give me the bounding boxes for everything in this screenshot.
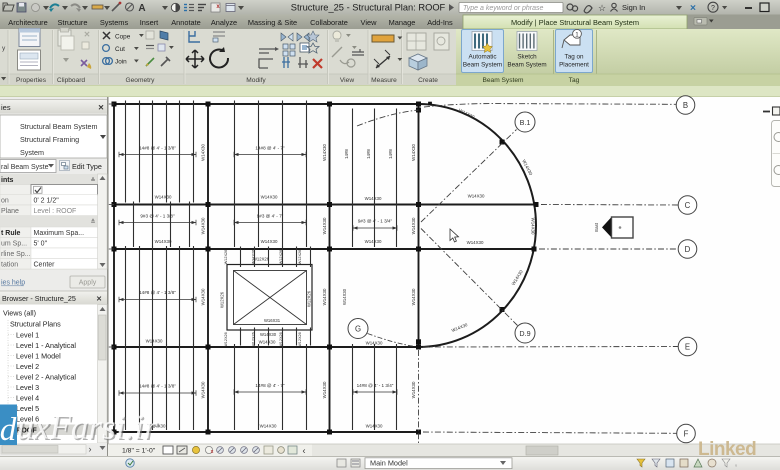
svg-text:14#8 @ 4' - 1 3/8": 14#8 @ 4' - 1 3/8" — [139, 146, 176, 151]
svg-text:on: on — [1, 197, 9, 204]
svg-text:ints: ints — [1, 177, 14, 184]
svg-text:W12X26: W12X26 — [252, 250, 256, 265]
svg-text:Architecture: Architecture — [8, 18, 47, 27]
svg-text:W14X30: W14X30 — [261, 239, 278, 244]
svg-text:Level : ROOF: Level : ROOF — [34, 208, 77, 215]
svg-text:Cut: Cut — [115, 46, 125, 53]
svg-text:W14X30: W14X30 — [260, 332, 277, 337]
svg-text:D: D — [685, 245, 691, 254]
svg-text:✕: ✕ — [98, 103, 104, 112]
svg-text:9#3 @ 4' - 7": 9#3 @ 4' - 7" — [257, 214, 284, 219]
svg-text:W14X30: W14X30 — [146, 339, 163, 344]
svg-text:14#8: 14#8 — [388, 149, 393, 159]
svg-text:Structural Plans: Structural Plans — [10, 320, 61, 329]
svg-text:≙: ≙ — [90, 219, 95, 226]
svg-text:14#8 @ 4' - 1 3/8": 14#8 @ 4' - 1 3/8" — [139, 384, 176, 389]
svg-text:14#8 @ 4' - 1 3/4": 14#8 @ 4' - 1 3/4" — [357, 383, 394, 388]
svg-text:W14X30: W14X30 — [468, 194, 485, 199]
svg-text:Tag on: Tag on — [565, 54, 584, 61]
svg-text:✕: ✕ — [690, 4, 697, 13]
svg-text:W14X30: W14X30 — [201, 381, 206, 398]
svg-text:D.9: D.9 — [519, 329, 530, 338]
svg-text:W14X30: W14X30 — [322, 144, 327, 161]
svg-text:Structure: Structure — [58, 18, 88, 27]
svg-text:9#3 @ 4' - 1 3/8": 9#3 @ 4' - 1 3/8" — [140, 214, 175, 219]
svg-text:W14X30: W14X30 — [155, 239, 172, 244]
svg-text:View: View — [361, 18, 378, 27]
svg-text:Structural Framing: Structural Framing — [20, 135, 79, 144]
svg-text:W12X26: W12X26 — [307, 290, 312, 307]
svg-text:W14X30: W14X30 — [260, 424, 277, 429]
svg-text:W14X30: W14X30 — [201, 288, 206, 305]
svg-text:B.1: B.1 — [520, 118, 531, 127]
svg-text:Level 3: Level 3 — [16, 383, 39, 392]
svg-text:Views (all): Views (all) — [3, 309, 36, 318]
svg-text:Add-Ins: Add-Ins — [427, 18, 453, 27]
svg-text:Beam System: Beam System — [507, 62, 546, 69]
svg-text:W14X30: W14X30 — [322, 217, 327, 234]
svg-text:Edit Type: Edit Type — [72, 162, 102, 171]
svg-text:G: G — [355, 324, 361, 333]
svg-text:✕: ✕ — [84, 30, 91, 39]
svg-text:5' 0": 5' 0" — [34, 240, 48, 247]
svg-text:Insert: Insert — [140, 18, 158, 27]
svg-text:System: System — [20, 148, 44, 157]
svg-text:‹: ‹ — [303, 446, 306, 456]
svg-text:Tag: Tag — [569, 77, 580, 84]
svg-text:W12X26: W12X26 — [224, 332, 228, 347]
svg-text:Join: Join — [115, 59, 127, 66]
svg-text:Properties: Properties — [16, 77, 47, 84]
svg-text:View: View — [340, 77, 354, 84]
svg-text:Maximum Spa...: Maximum Spa... — [34, 230, 85, 237]
svg-text:ies help: ies help — [1, 280, 25, 287]
svg-text:x: x — [211, 449, 214, 455]
svg-text:W14X30: W14X30 — [411, 288, 416, 305]
svg-text:W12X26: W12X26 — [298, 332, 302, 347]
svg-text:14#8: 14#8 — [366, 149, 371, 159]
svg-text:W12X26: W12X26 — [220, 291, 225, 308]
svg-text:Systems: Systems — [100, 18, 129, 27]
svg-text:Cope: Cope — [115, 34, 131, 41]
svg-text:Sign In: Sign In — [622, 3, 645, 12]
svg-text:ies: ies — [1, 103, 11, 112]
svg-text:14#8 @ 4' - 7": 14#8 @ 4' - 7" — [255, 383, 285, 388]
svg-text:W16X31: W16X31 — [264, 318, 281, 323]
svg-text:☆: ☆ — [598, 3, 606, 13]
svg-text:C: C — [685, 201, 691, 210]
svg-text:Analyze: Analyze — [211, 18, 237, 27]
svg-text:B: B — [683, 101, 688, 110]
svg-text:W14X30: W14X30 — [201, 217, 206, 234]
svg-text:W12X26: W12X26 — [298, 250, 302, 265]
svg-text:W14X30: W14X30 — [259, 340, 276, 345]
svg-text:d: d — [0, 412, 17, 448]
svg-text:W14X30: W14X30 — [322, 288, 327, 305]
svg-text:14#8 @ 4' - 7": 14#8 @ 4' - 7" — [255, 146, 285, 151]
svg-text:uxFarsi.ir: uxFarsi.ir — [17, 408, 158, 447]
svg-text:W14X30: W14X30 — [467, 240, 484, 245]
svg-text:Annotate: Annotate — [171, 18, 201, 27]
svg-text:tation: tation — [1, 261, 18, 268]
svg-text:Beam System: Beam System — [463, 62, 502, 69]
svg-text:Level 4: Level 4 — [16, 394, 39, 403]
svg-text:Measure: Measure — [371, 77, 397, 84]
svg-text:1: 1 — [575, 31, 579, 38]
svg-text:um Sp...: um Sp... — [1, 240, 27, 247]
svg-text:East: East — [594, 222, 599, 232]
svg-text:Modify | Place Structural Beam: Modify | Place Structural Beam System — [511, 18, 639, 27]
svg-text:Type a keyword or phrase: Type a keyword or phrase — [463, 5, 544, 12]
svg-text:Beam System: Beam System — [482, 77, 524, 84]
svg-text:W14X30: W14X30 — [411, 381, 416, 398]
svg-text:rline Sp...: rline Sp... — [1, 251, 31, 258]
svg-text:✕: ✕ — [96, 296, 102, 303]
svg-text:≙: ≙ — [90, 177, 95, 184]
svg-text:Modify: Modify — [246, 77, 266, 84]
svg-text:Create: Create — [418, 77, 438, 84]
svg-text:Level 1: Level 1 — [16, 331, 39, 340]
svg-text:t Rule: t Rule — [1, 230, 21, 237]
svg-text:Level 1 Model: Level 1 Model — [16, 352, 61, 361]
svg-text:Massing & Site: Massing & Site — [248, 18, 297, 27]
svg-text:W14X30: W14X30 — [531, 218, 536, 235]
svg-text:A: A — [138, 3, 145, 14]
svg-text:W14X30: W14X30 — [261, 195, 278, 200]
svg-text:W12X26: W12X26 — [279, 250, 283, 265]
svg-text:1/8" = 1'-0": 1/8" = 1'-0" — [122, 447, 156, 454]
svg-text:Collaborate: Collaborate — [310, 18, 348, 27]
svg-text:Plane: Plane — [1, 208, 19, 215]
svg-text:Browser - Structure_25: Browser - Structure_25 — [2, 294, 76, 303]
svg-text:?: ? — [711, 5, 715, 12]
svg-text:E: E — [685, 342, 690, 351]
svg-text:W14X30: W14X30 — [365, 196, 382, 201]
svg-text:W14X30: W14X30 — [342, 288, 347, 305]
svg-text:Level 2 - Analytical: Level 2 - Analytical — [16, 373, 76, 382]
svg-text:Placement: Placement — [559, 62, 589, 69]
svg-text:Geometry: Geometry — [126, 77, 156, 84]
svg-text:Structural Beam System: Structural Beam System — [20, 122, 98, 131]
svg-text:Main Model: Main Model — [370, 459, 408, 468]
svg-text:W14X30: W14X30 — [201, 144, 206, 161]
svg-text:W14X30: W14X30 — [155, 195, 172, 200]
svg-text:W12X26: W12X26 — [224, 250, 228, 265]
svg-text:Structure_25 - Structural Plan: Structure_25 - Structural Plan: ROOF — [291, 3, 446, 13]
svg-text:0' 2 1/2": 0' 2 1/2" — [34, 197, 60, 204]
svg-text:W14X30: W14X30 — [365, 239, 382, 244]
svg-text:W12X26: W12X26 — [252, 332, 256, 347]
svg-text:W14X30: W14X30 — [366, 424, 383, 429]
svg-text:₀: ₀ — [735, 462, 737, 468]
svg-text:Apply: Apply — [79, 280, 97, 287]
svg-text:W14X30: W14X30 — [411, 144, 416, 161]
svg-text:Center: Center — [34, 261, 56, 268]
svg-text:F: F — [684, 429, 689, 438]
svg-text:14#8 @ 4' - 1 3/8": 14#8 @ 4' - 1 3/8" — [139, 290, 176, 295]
svg-text:W12X26: W12X26 — [279, 332, 283, 347]
svg-text:Automatic: Automatic — [469, 54, 497, 61]
svg-text:9#3 @ 4' - 1 3/4": 9#3 @ 4' - 1 3/4" — [358, 219, 393, 224]
svg-text:Clipboard: Clipboard — [57, 77, 86, 84]
svg-text:ral Beam Systе: ral Beam Systе — [1, 164, 49, 171]
svg-text:Level 1 - Analytical: Level 1 - Analytical — [16, 341, 76, 350]
svg-text:W14X30: W14X30 — [366, 341, 383, 346]
svg-text:Level 2: Level 2 — [16, 362, 39, 371]
svg-text:Manage: Manage — [389, 18, 416, 27]
svg-text:Linked: Linked — [698, 439, 756, 460]
svg-text:14#8: 14#8 — [344, 149, 349, 159]
svg-text:Sketch: Sketch — [517, 54, 537, 61]
svg-text:W14X30: W14X30 — [322, 381, 327, 398]
svg-text:W14X30: W14X30 — [411, 217, 416, 234]
